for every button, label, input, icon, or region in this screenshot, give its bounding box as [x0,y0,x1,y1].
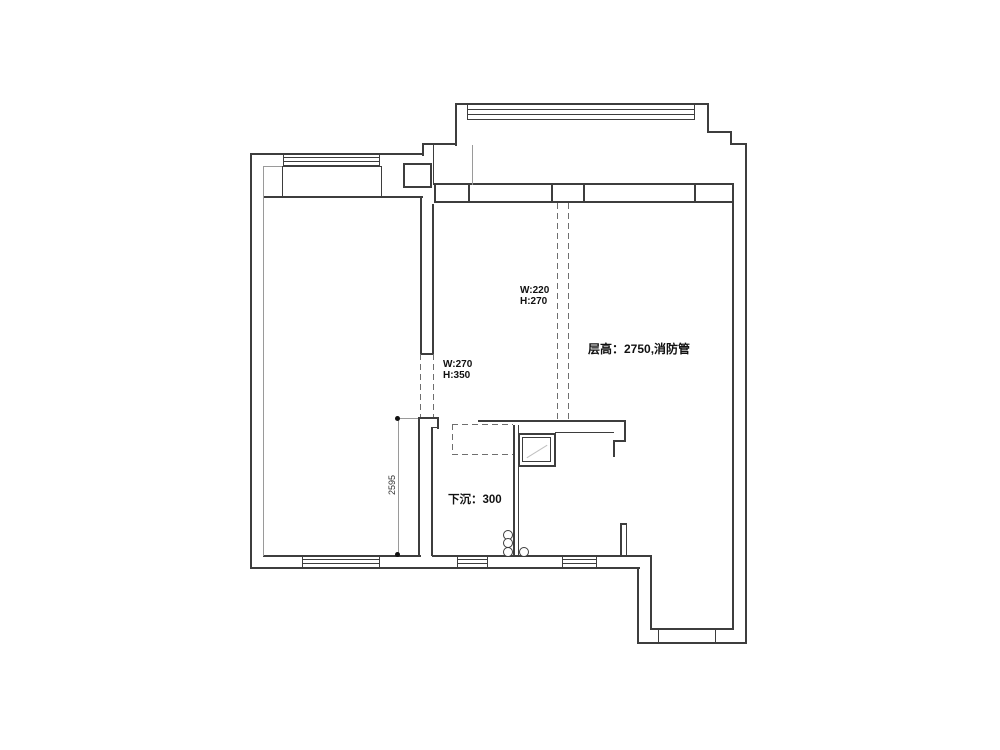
wall-line-thin [282,166,283,197]
construction-line [263,166,264,556]
wall-line [707,131,732,133]
wall-line [468,183,470,203]
wall-line [403,186,432,188]
wall-line [455,103,457,146]
wall-line [434,201,734,203]
wall-line-thin [379,153,380,166]
beam-top-label-h: H:270 [520,296,549,307]
wall-line [250,567,640,569]
beam-top-label: W:220 H:270 [520,285,549,307]
wall-line-thin [555,432,614,433]
beam-side-label: W:270 H:350 [443,359,472,381]
construction-line [472,145,473,185]
wall-line-thin [283,153,284,166]
wall-line [430,163,432,187]
wall-line-thin [433,145,434,185]
wall-line-thin [282,166,382,167]
sunken-floor-note: 下沉：300 [448,494,502,506]
beam-dashed-line [452,424,513,425]
wall-line-thin [562,555,563,568]
wall-line-thin [283,165,380,166]
pipe-circle [503,547,513,557]
wall-line-thin [626,523,627,556]
wall-line [403,163,405,187]
wall-line [433,183,734,185]
wall-line [455,103,709,105]
beam-dashed-line [452,424,453,455]
wall-line-thin [562,563,597,564]
wall-line [418,418,420,556]
construction-line [397,418,418,419]
wall-line-thin [457,559,488,560]
wall-line [707,103,709,133]
beam-dashed-line [557,203,558,420]
dimension-2595: 2595 [387,470,397,500]
wall-line [478,420,626,422]
ceiling-height-note: 层高：2750,消防管 [588,343,690,356]
wall-line [732,184,734,630]
beam-side-label-w: W:270 [443,359,472,370]
wall-line-thin [282,196,382,197]
wall-line [420,353,434,355]
wall-line [620,523,627,525]
wall-line-thin [302,559,380,560]
wall-line-thin [302,556,303,568]
wall-line [745,143,747,644]
wall-line-thin [562,559,597,560]
wall-line [650,555,652,630]
wall-line [624,420,626,442]
wall-line [432,204,434,354]
wall-line-thin [715,628,716,642]
wall-line [250,153,252,569]
wall-line [263,196,423,198]
wall-line-thin [283,157,380,158]
wall-line [513,425,515,556]
wall-line [434,183,436,203]
wall-line [431,428,433,556]
wall-line [403,163,432,165]
wall-line-thin [467,109,695,110]
wall-line [437,417,439,429]
wall-line [422,143,457,145]
wall-line-thin [487,555,488,568]
wall-line [418,417,438,419]
wall-line [613,440,626,442]
wall-line-thin [467,114,695,115]
wall-line [432,555,651,557]
construction-line [398,419,399,555]
wall-line-thin [457,563,488,564]
beam-dashed-line [568,203,569,420]
wall-line [613,440,615,457]
wall-line [650,628,734,630]
wall-line-thin [379,556,380,568]
wall-line-thin [283,161,380,162]
wall-line [694,183,696,203]
beam-dashed-line [433,354,434,417]
wall-line [422,143,424,156]
wall-line [730,131,732,145]
wall-line [551,183,553,203]
wall-line-thin [694,103,695,120]
dimension-end-dot [395,552,400,557]
wall-line [637,642,747,644]
floor-plan-canvas: W:220 H:270 W:270 H:350 层高：2750,消防管 下沉：3… [0,0,1000,750]
wall-line [730,143,747,145]
wall-line-thin [658,628,659,642]
beam-dashed-line [452,454,513,455]
dimension-end-dot [395,416,400,421]
wall-line-thin [431,427,438,428]
wall-line-thin [457,555,458,568]
pipe-circle [519,547,529,557]
wall-line [637,567,639,644]
wall-line-thin [302,563,380,564]
wall-line [583,183,585,203]
wall-line-thin [381,166,382,197]
beam-top-label-w: W:220 [520,285,549,296]
beam-side-label-h: H:350 [443,370,472,381]
wall-line [620,523,622,556]
construction-line [263,166,283,167]
wall-line-thin [467,103,468,120]
wall-line-thin [596,555,597,568]
beam-dashed-line [420,354,421,417]
wall-line [420,196,422,354]
wall-line [250,153,424,155]
wall-line-thin [467,119,695,120]
